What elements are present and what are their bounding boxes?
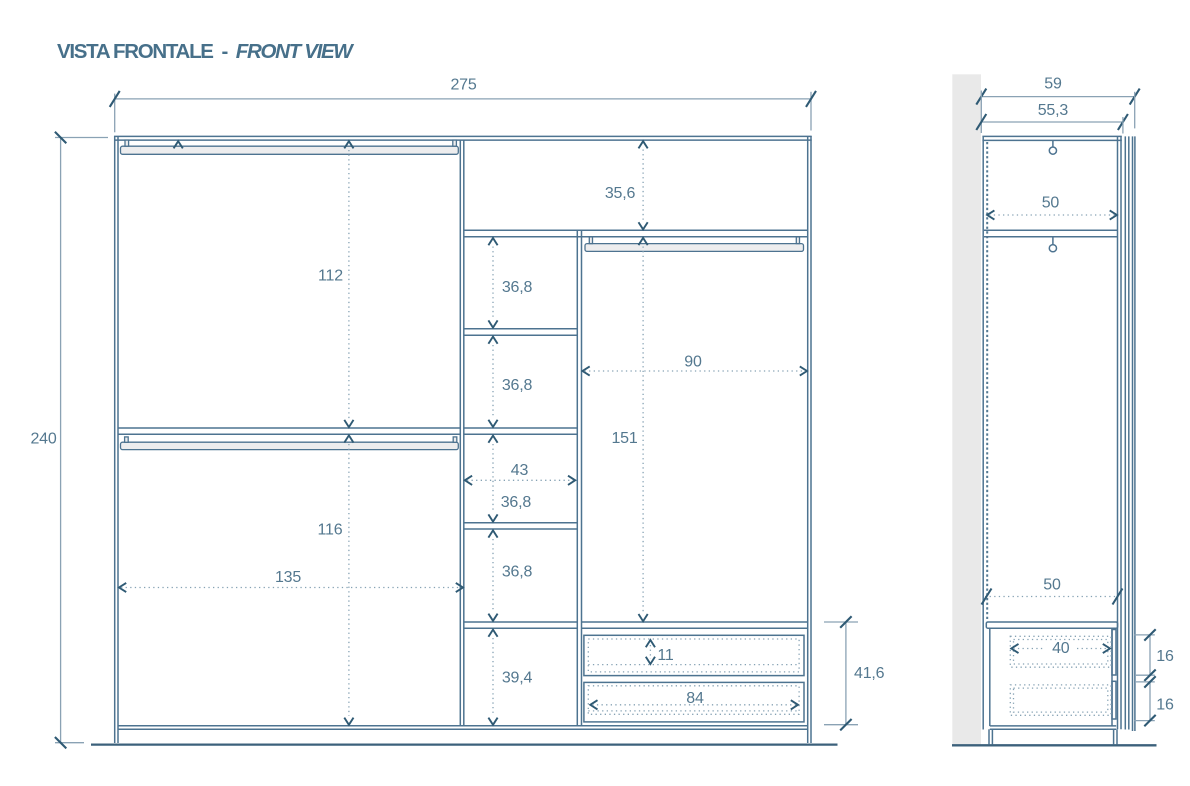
- svg-text:39,4: 39,4: [502, 670, 533, 687]
- svg-text:36,8: 36,8: [501, 494, 532, 511]
- svg-text:55,3: 55,3: [1038, 102, 1069, 119]
- svg-text:112: 112: [318, 268, 343, 285]
- svg-text:VISTA FRONTALE - FRONT VIEW: VISTA FRONTALE - FRONT VIEW: [57, 40, 354, 63]
- svg-text:116: 116: [318, 522, 343, 539]
- svg-text:41,6: 41,6: [854, 665, 885, 682]
- svg-text:50: 50: [1042, 195, 1060, 212]
- svg-text:36,8: 36,8: [502, 377, 533, 394]
- svg-text:59: 59: [1044, 76, 1062, 93]
- svg-text:50: 50: [1043, 577, 1061, 594]
- svg-text:16: 16: [1156, 648, 1174, 665]
- svg-text:240: 240: [30, 431, 56, 448]
- svg-text:35,6: 35,6: [605, 185, 636, 202]
- svg-text:11: 11: [657, 647, 674, 664]
- svg-text:135: 135: [275, 569, 301, 586]
- svg-text:275: 275: [450, 77, 476, 94]
- svg-text:16: 16: [1156, 697, 1174, 714]
- svg-text:43: 43: [511, 462, 529, 479]
- svg-text:90: 90: [684, 354, 702, 371]
- svg-text:84: 84: [686, 690, 704, 707]
- svg-text:36,8: 36,8: [502, 279, 533, 296]
- svg-text:40: 40: [1052, 640, 1070, 657]
- svg-text:151: 151: [611, 430, 637, 447]
- svg-text:36,8: 36,8: [502, 564, 533, 581]
